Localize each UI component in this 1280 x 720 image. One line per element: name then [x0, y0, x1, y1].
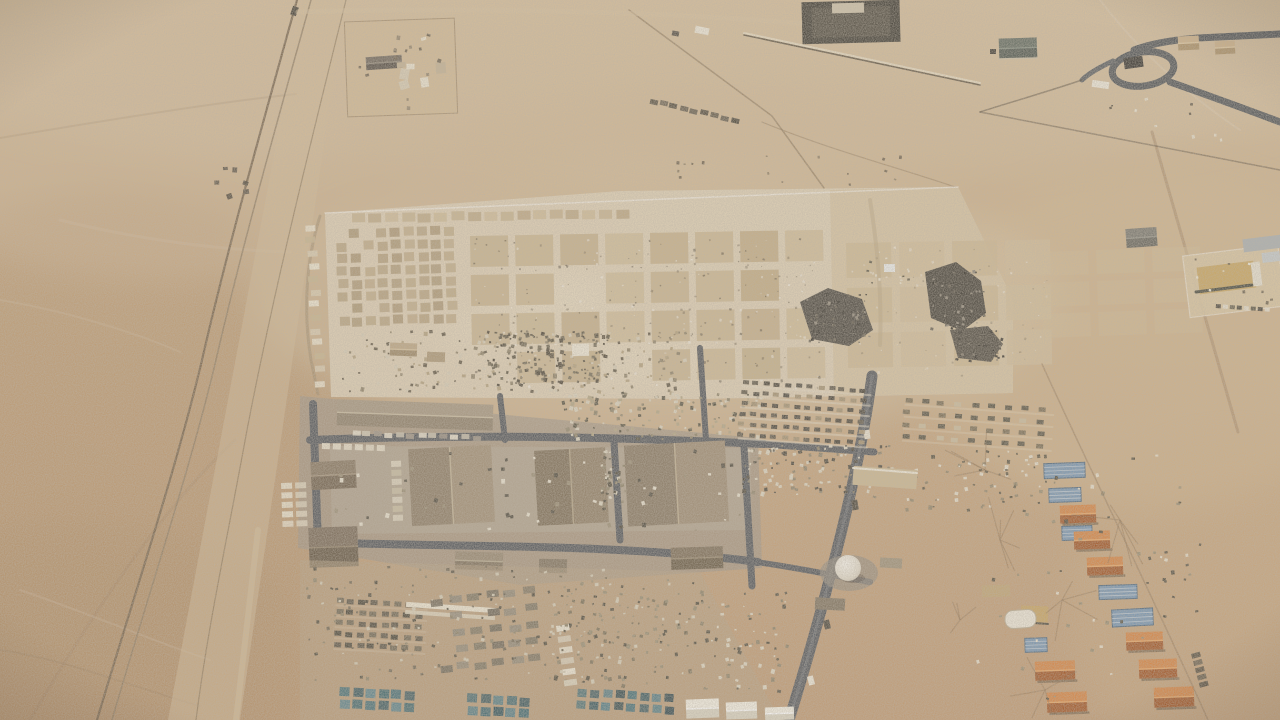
aerial-photo-desert-base	[0, 0, 1280, 720]
aerial-photo-canvas	[0, 0, 1280, 720]
scene-layers	[0, 0, 1280, 720]
vignette	[0, 0, 1280, 720]
